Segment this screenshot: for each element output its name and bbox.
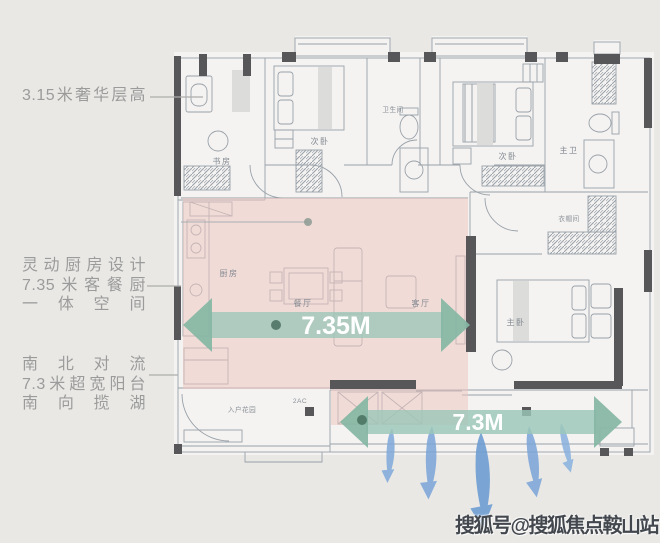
annotation-ceiling-height: 3.15米奢华层高 <box>22 86 146 106</box>
watermark-sohu: 搜狐号@搜狐焦点鞍山站 <box>455 509 658 538</box>
room-label-bedroom-2: 次卧 <box>311 136 330 146</box>
room-label-living: 客厅 <box>412 298 431 308</box>
dimension-label-7-35m: 7.35M <box>301 312 370 340</box>
annotation-kitchen-design: 灵动厨房设计 7.35米客餐厨 一体空间 <box>22 256 146 315</box>
annotation-balcony-convection: 南北对流 7.3米超宽阳台 南向揽湖 <box>22 355 146 414</box>
floorplan-marketing-image: 书房 次卧 卫生间 次卧 主卫 厨房 餐厅 客厅 衣帽间 主卧 入户花园 2AC <box>0 0 660 543</box>
room-label-ac-platform: 2AC <box>293 398 307 405</box>
annotation-line: 南向揽湖 <box>22 394 146 414</box>
room-label-entry-garden: 入户花园 <box>228 405 256 414</box>
room-label-master-bedroom: 主卧 <box>507 317 526 327</box>
annotation-line: 一体空间 <box>22 295 146 315</box>
annotation-line: 7.35米客餐厨 <box>22 276 146 296</box>
room-label-cloakroom: 衣帽间 <box>558 214 579 223</box>
annotation-line: 灵动厨房设计 <box>22 256 146 276</box>
annotation-line: 7.3米超宽阳台 <box>22 375 146 395</box>
annotation-line: 南北对流 <box>22 355 146 375</box>
room-label-bathroom: 卫生间 <box>382 105 403 114</box>
dimension-label-7-3m: 7.3M <box>452 409 503 435</box>
room-label-study: 书房 <box>213 156 232 166</box>
room-label-master-bathroom: 主卫 <box>560 145 579 155</box>
room-label-kitchen: 厨房 <box>220 268 239 278</box>
room-label-bedroom-3: 次卧 <box>499 151 518 161</box>
room-label-dining: 餐厅 <box>294 299 313 308</box>
annotation-line: 3.15米奢华层高 <box>22 86 146 106</box>
